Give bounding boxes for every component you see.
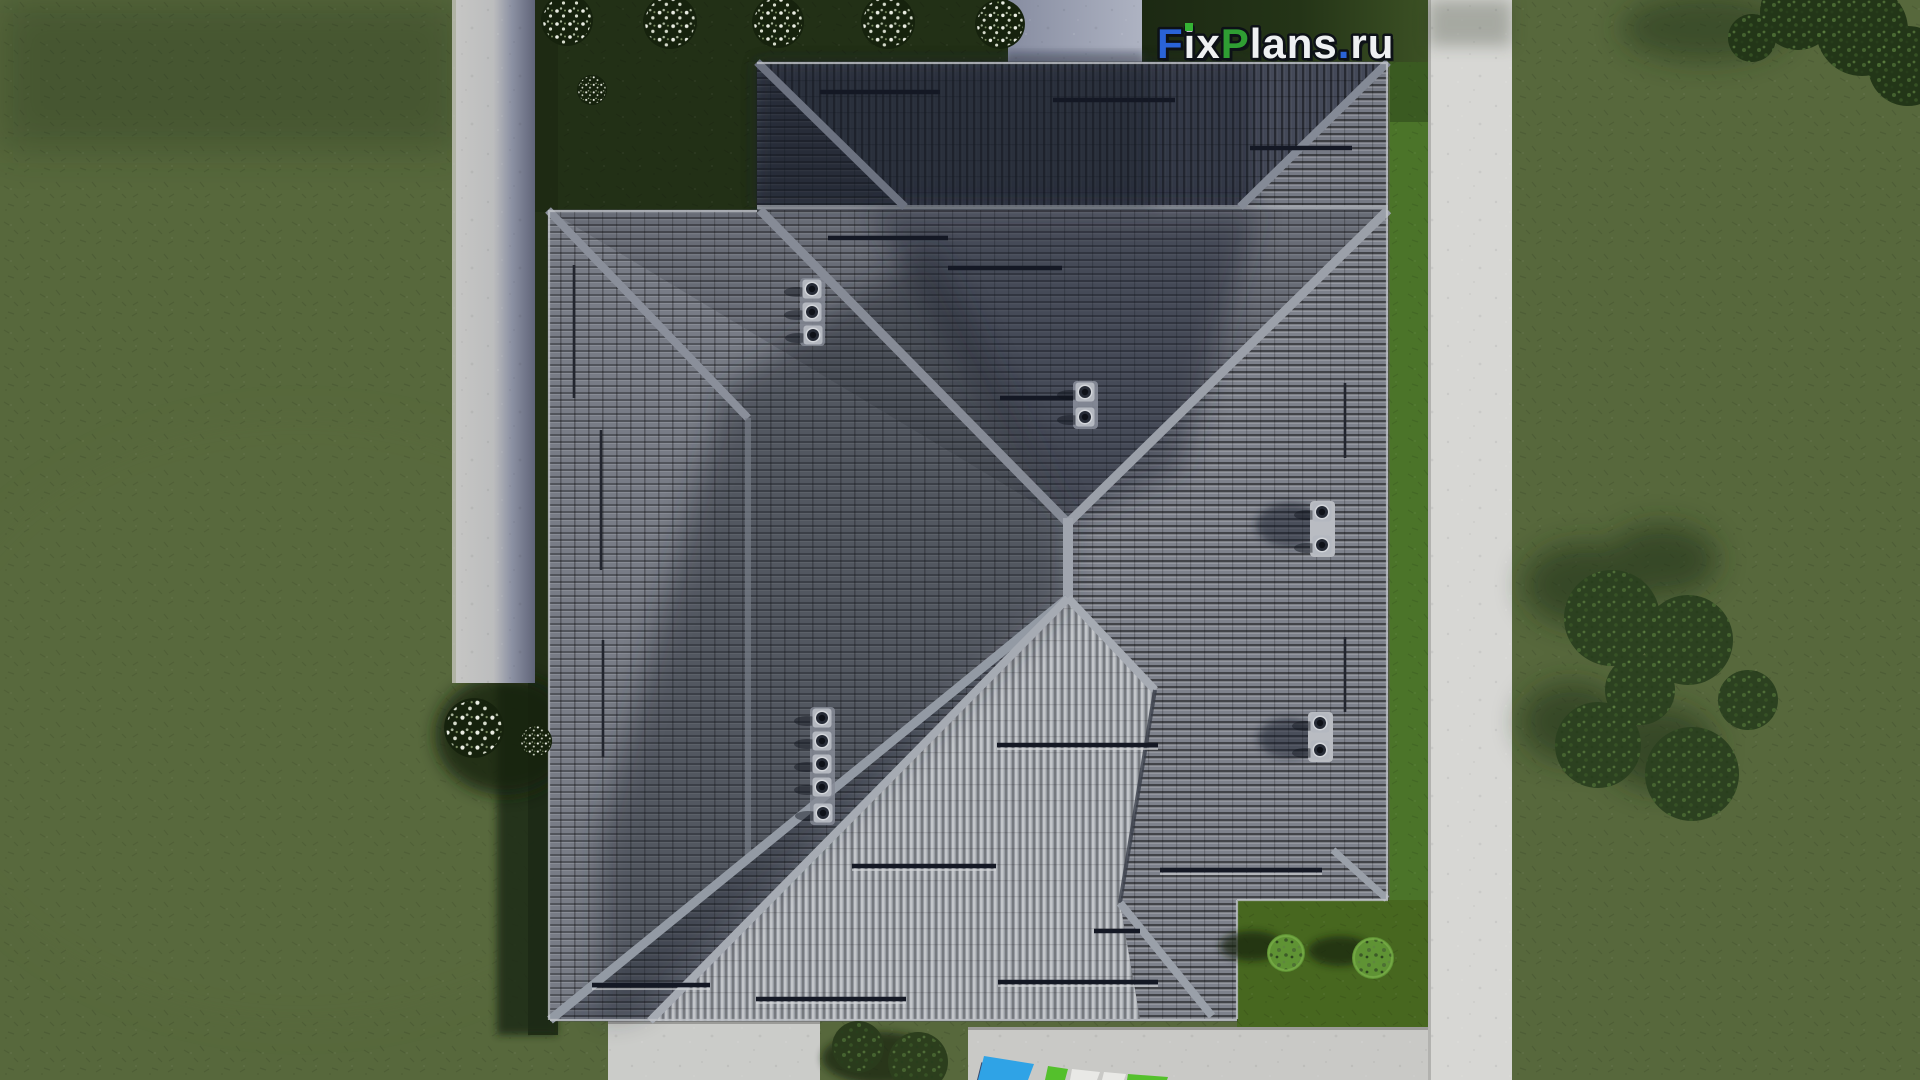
flower-bush (444, 698, 504, 758)
logo-i-dot (1185, 23, 1193, 31)
lawn-shadow-top-left (0, 0, 460, 150)
right-sidewalk (1428, 0, 1512, 1080)
top-concrete-pad (1008, 0, 1142, 62)
left-concrete-wall-path (452, 0, 535, 683)
aerial-render: FixPlans.ru FixPlans.ru FixPlans.ru (0, 0, 1920, 1080)
roofside-green-strip (1390, 62, 1428, 902)
flower-bush-small (520, 725, 552, 757)
flower-bush (975, 0, 1025, 49)
flower-bush-small (577, 75, 607, 105)
render-viewport: FixPlans.ru FixPlans.ru FixPlans.ru (0, 0, 1920, 1080)
front-driveway-left-pad (608, 1021, 820, 1080)
fixplans-logo: FixPlans.ru FixPlans.ru (1157, 20, 1397, 70)
sidewalk-tree-shadow (1428, 0, 1512, 46)
